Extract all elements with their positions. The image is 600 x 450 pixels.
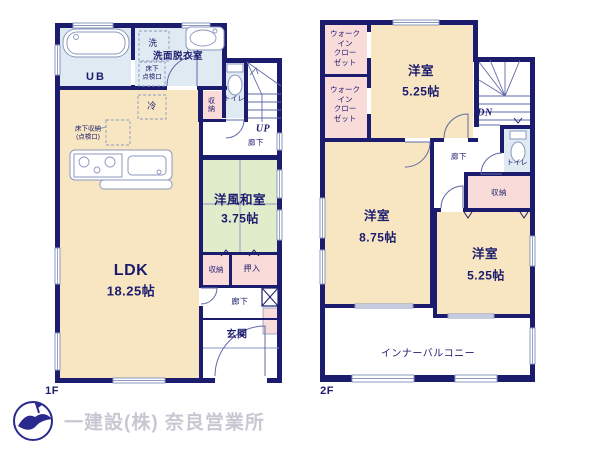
room-label-balcony: インナーバルコニー (381, 349, 475, 362)
room-label-washroom: 洗面脱衣室 (153, 51, 203, 63)
toilet-icon-1f (227, 64, 243, 95)
label-washer: 洗 (148, 38, 158, 50)
room-size-bedroom-mid: 8.75帖 (359, 230, 397, 245)
floor2-label: 2F (320, 384, 334, 398)
room-size-bedroom-right: 5.25帖 (467, 268, 505, 283)
room-label-wic-upper: ウォーク イン クロー ゼット (330, 29, 360, 67)
room-label-wic-lower: ウォーク イン クロー ゼット (330, 85, 360, 123)
toilet-icon-2f (510, 131, 526, 162)
room-label-bedroom-top: 洋室 (408, 63, 434, 79)
room-label-toilet-2f: トイレ (507, 160, 528, 169)
room-label-entrance: 玄関 (227, 330, 248, 343)
label-oshiire: 押入 (244, 264, 261, 274)
label-fridge: 冷 (147, 101, 157, 113)
room-label-washitsu: 洋風和室 (214, 192, 266, 208)
room-label-bedroom-right: 洋室 (472, 246, 498, 262)
room-label-ub: UB (86, 70, 106, 84)
label-inspection-hatch: 床下 点検口 (142, 66, 162, 83)
label-closet-2f: 収納 (491, 188, 507, 198)
label-underfloor-storage: 床下収納 (点検口) (75, 126, 101, 143)
room-size-bedroom-top: 5.25帖 (402, 84, 440, 99)
label-stairs-down: DN (477, 108, 492, 121)
shoe-box-icon (262, 288, 278, 306)
logo-bird-icon (14, 401, 52, 440)
room-size-washitsu: 3.75帖 (221, 211, 259, 226)
label-storage-side: 収納 (208, 97, 215, 113)
room-label-bedroom-mid: 洋室 (364, 208, 390, 224)
room-size-ldk: 18.25帖 (107, 284, 156, 301)
room-label-toilet-1f: トイレ (224, 96, 245, 105)
floor-plan-page: UB 洗面脱衣室 洗 床下 点検口 冷 収納 トイレ UP 廊下 床下収納 (点… (0, 0, 600, 450)
label-stairs-up: UP (256, 124, 270, 137)
company-name: 一建設(株) 奈良営業所 (64, 408, 265, 435)
floor-plan-canvas (0, 0, 600, 450)
vanity-sink-icon (186, 27, 224, 50)
label-hall-2f: 廊下 (451, 152, 467, 162)
label-hall-upper-1f: 廊下 (248, 138, 264, 148)
floor1-label: 1F (45, 384, 59, 398)
stairs-up-icon (247, 62, 281, 122)
room-label-ldk: LDK (114, 261, 148, 281)
label-closet-1f: 収納 (209, 265, 224, 275)
bathtub-icon (63, 29, 129, 57)
label-hall-lower-1f: 廊下 (232, 297, 249, 307)
